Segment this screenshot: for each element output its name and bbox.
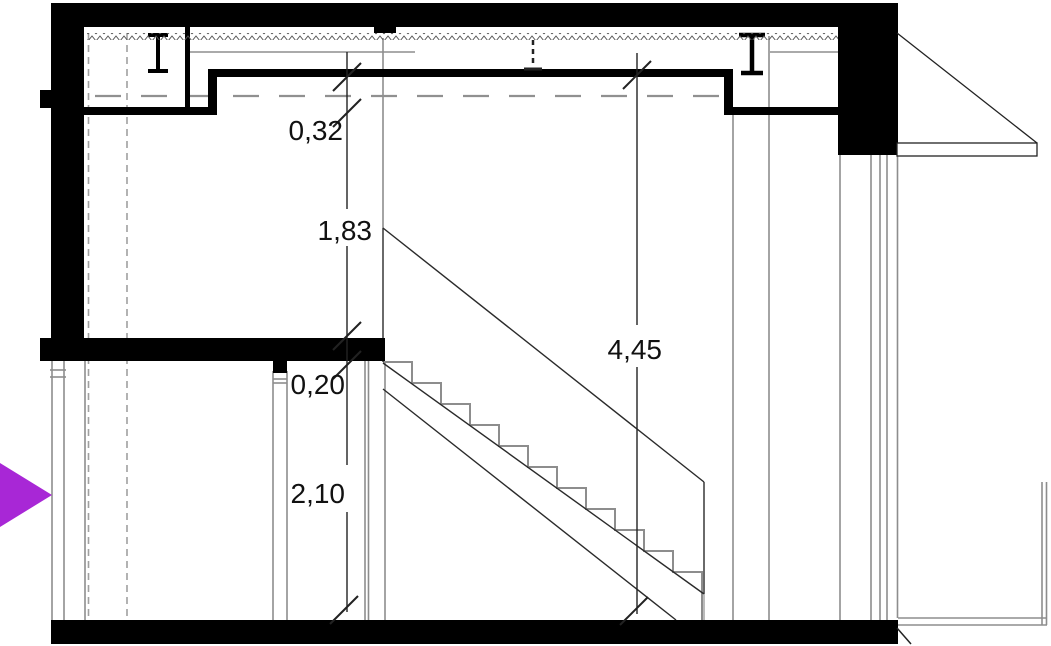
left-wall-nub	[40, 90, 53, 108]
dimension-labels: 0,32 1,83 0,20 2,10 4,45	[289, 115, 663, 509]
stair-stringer-lines	[383, 363, 704, 620]
section-drawing-canvas: 0,32 1,83 0,20 2,10 4,45	[0, 0, 1051, 646]
roof-beam-tab	[374, 27, 396, 33]
ground-tick	[897, 628, 911, 644]
right-bay-soffit	[724, 107, 838, 115]
left-wall	[51, 3, 84, 361]
dropped-ceiling-slab	[208, 69, 733, 77]
stair-steps	[383, 362, 702, 620]
ceiling-hatch	[87, 33, 838, 40]
canopy-slab	[897, 143, 1037, 156]
right-column	[838, 3, 898, 155]
canopy	[897, 33, 1037, 156]
stair-railing	[383, 228, 704, 620]
dim-label-slab-thickness: 0,20	[291, 369, 346, 400]
section-drawing-page: 0,32 1,83 0,20 2,10 4,45	[0, 0, 1051, 646]
dim-label-ceiling-drop: 0,32	[289, 115, 344, 146]
i-beam-symbol-hidden	[524, 40, 542, 69]
dim-label-upper-height: 1,83	[318, 215, 373, 246]
dropped-ceiling-left-step	[208, 69, 217, 115]
door-head-cap	[273, 361, 287, 373]
pointer-cursor-icon	[0, 463, 52, 527]
dim-label-overall-height: 4,45	[608, 334, 663, 365]
i-beam-symbol-right	[739, 35, 765, 73]
left-bay-soffit	[84, 107, 217, 115]
i-beam-symbol-left	[148, 35, 168, 71]
dim-label-lower-height: 2,10	[291, 478, 346, 509]
roof-slab	[51, 3, 898, 27]
ground-slab	[51, 620, 898, 644]
